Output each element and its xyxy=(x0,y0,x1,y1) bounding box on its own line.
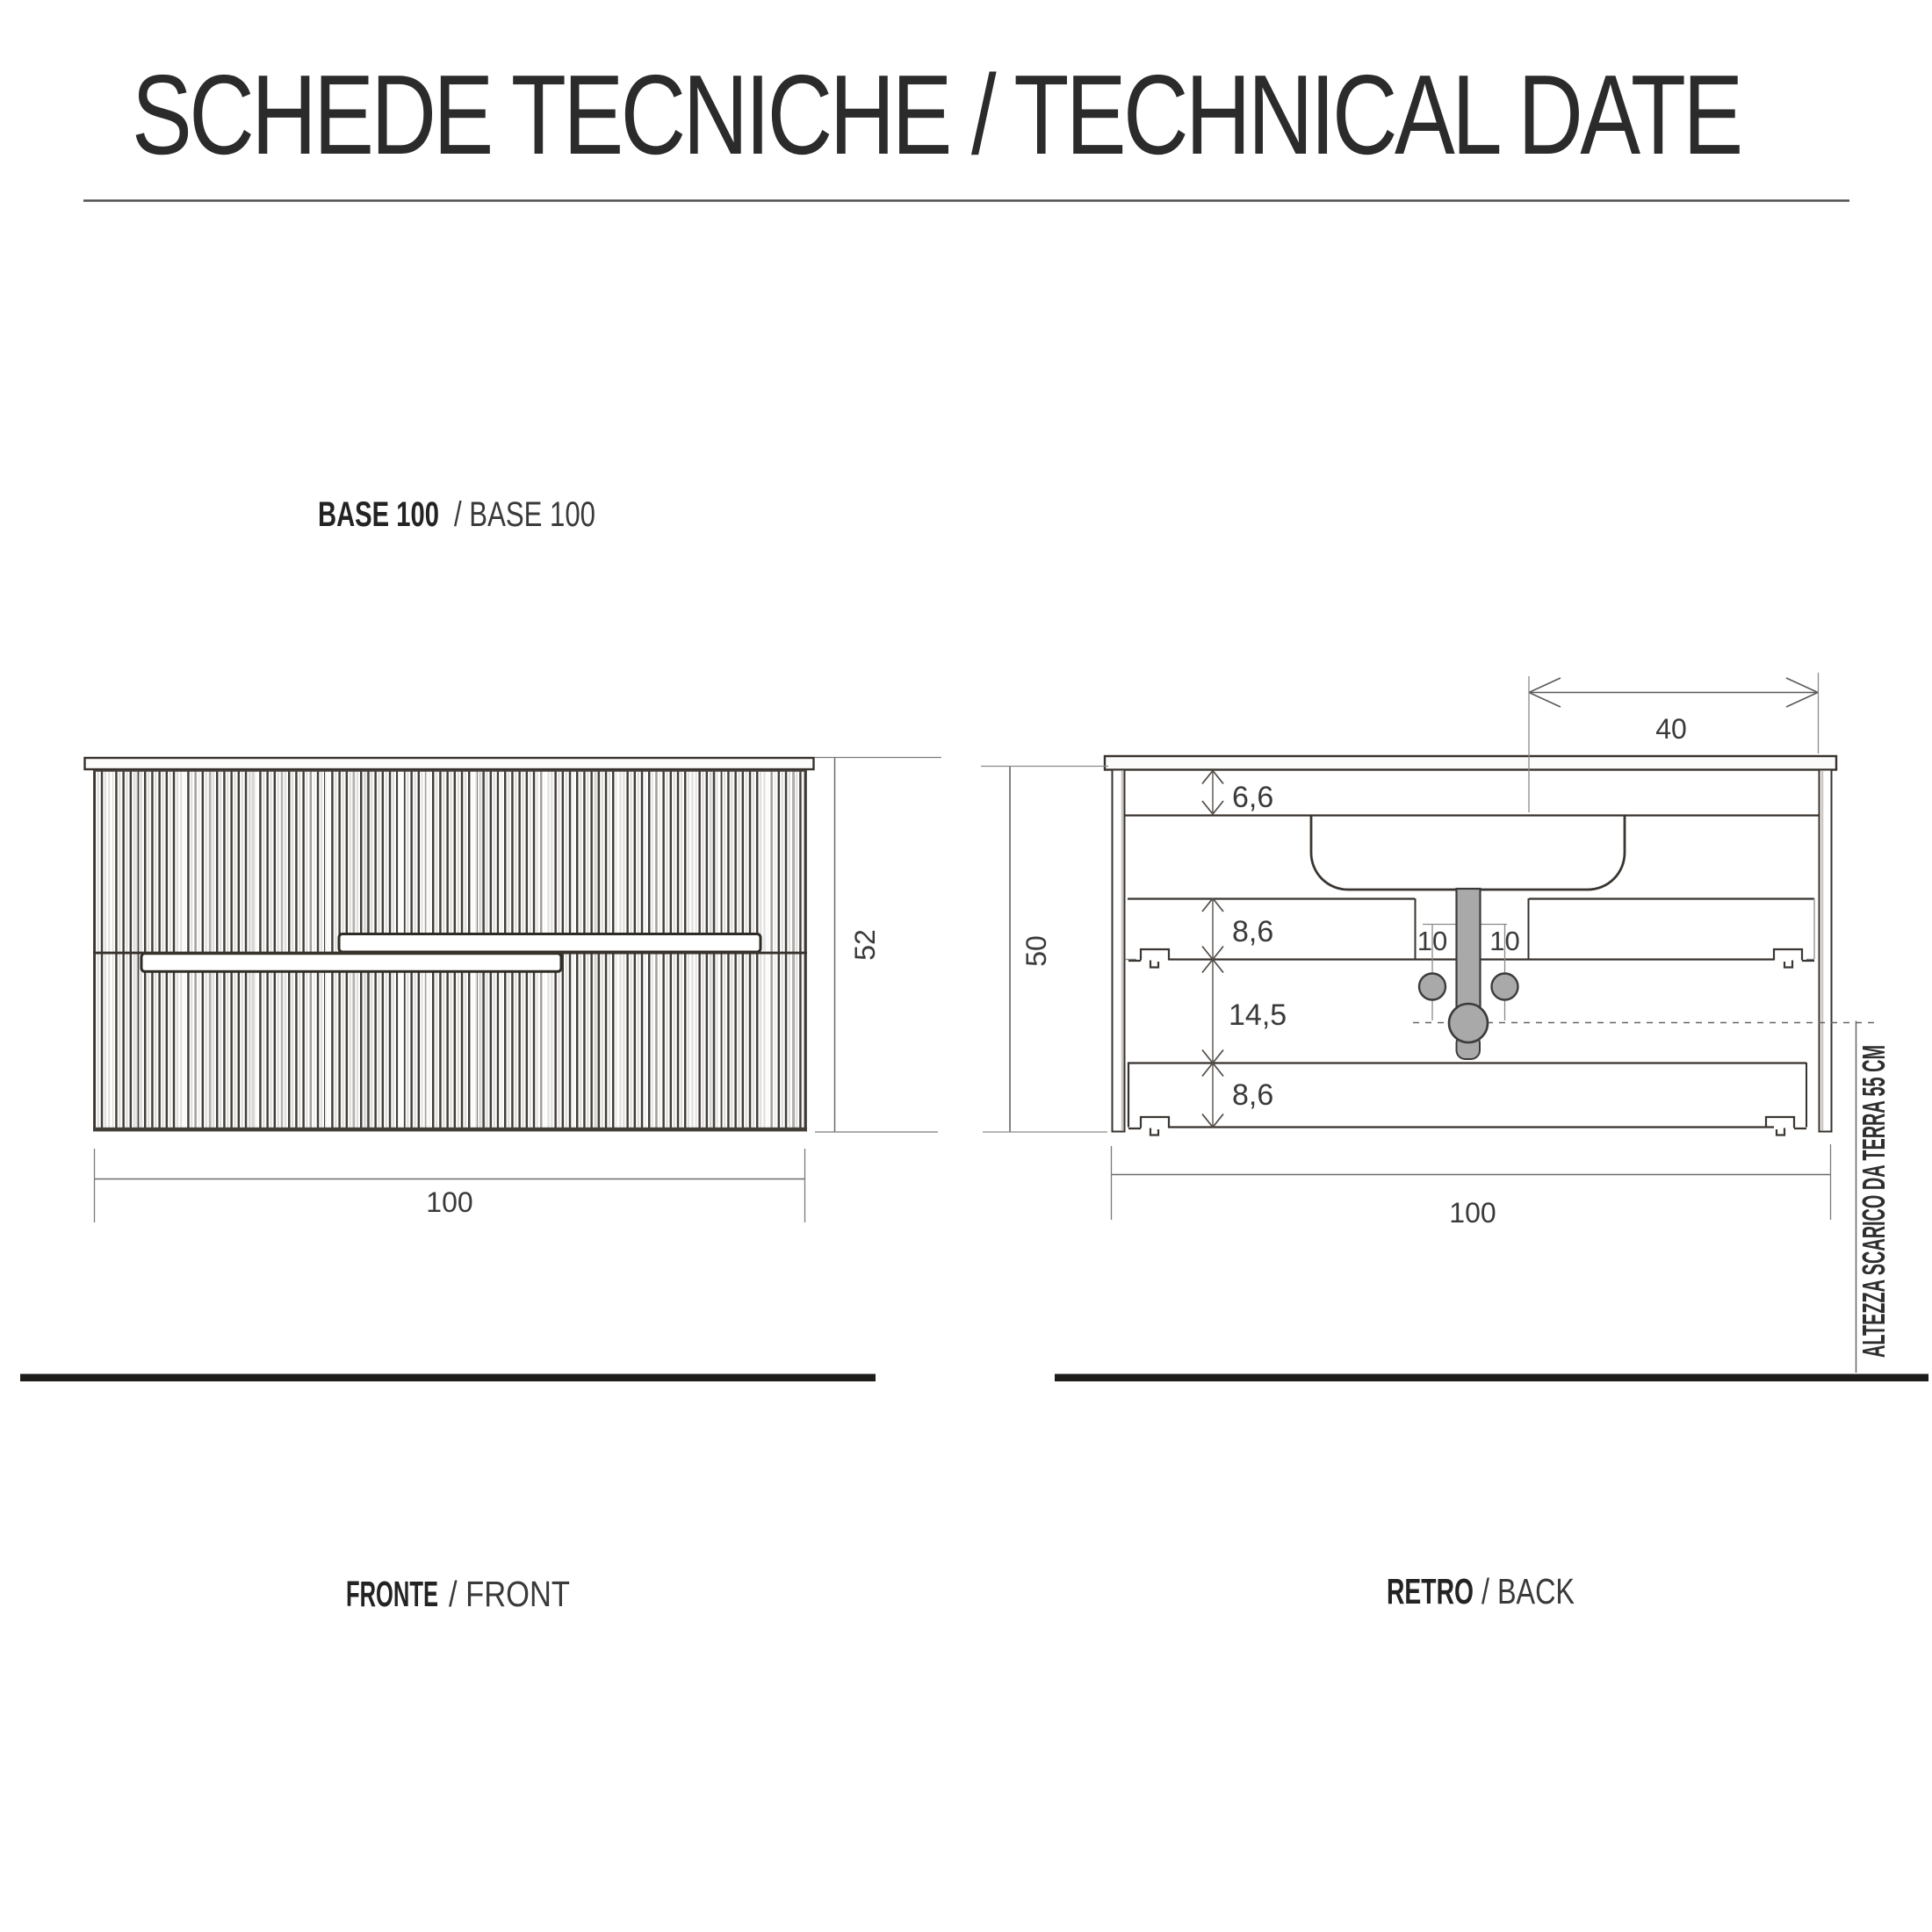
svg-text:/ BACK: / BACK xyxy=(1481,1571,1575,1611)
svg-text:6,6: 6,6 xyxy=(1232,781,1273,814)
svg-text:SCHEDE TECNICHE / TECHNICAL DA: SCHEDE TECNICHE / TECHNICAL DATE xyxy=(132,51,1743,178)
svg-text:14,5: 14,5 xyxy=(1229,998,1287,1032)
svg-text:RETRO: RETRO xyxy=(1387,1571,1474,1611)
svg-text:10: 10 xyxy=(1489,926,1519,956)
svg-text:/ BASE 100: / BASE 100 xyxy=(454,495,595,534)
svg-text:8,6: 8,6 xyxy=(1232,915,1273,948)
svg-text:40: 40 xyxy=(1655,713,1687,745)
svg-text:/ FRONT: / FRONT xyxy=(449,1574,570,1614)
svg-text:100: 100 xyxy=(1449,1197,1496,1229)
svg-text:FRONTE: FRONTE xyxy=(346,1574,438,1614)
svg-text:10: 10 xyxy=(1417,926,1447,956)
svg-text:ALTEZZA SCARICO DA TERRA 55 CM: ALTEZZA SCARICO DA TERRA 55 CM xyxy=(1856,1045,1892,1358)
svg-text:50: 50 xyxy=(1020,935,1052,967)
svg-text:52: 52 xyxy=(849,929,881,961)
svg-text:8,6: 8,6 xyxy=(1232,1078,1273,1112)
svg-text:BASE 100: BASE 100 xyxy=(318,495,439,534)
svg-text:100: 100 xyxy=(426,1186,472,1218)
